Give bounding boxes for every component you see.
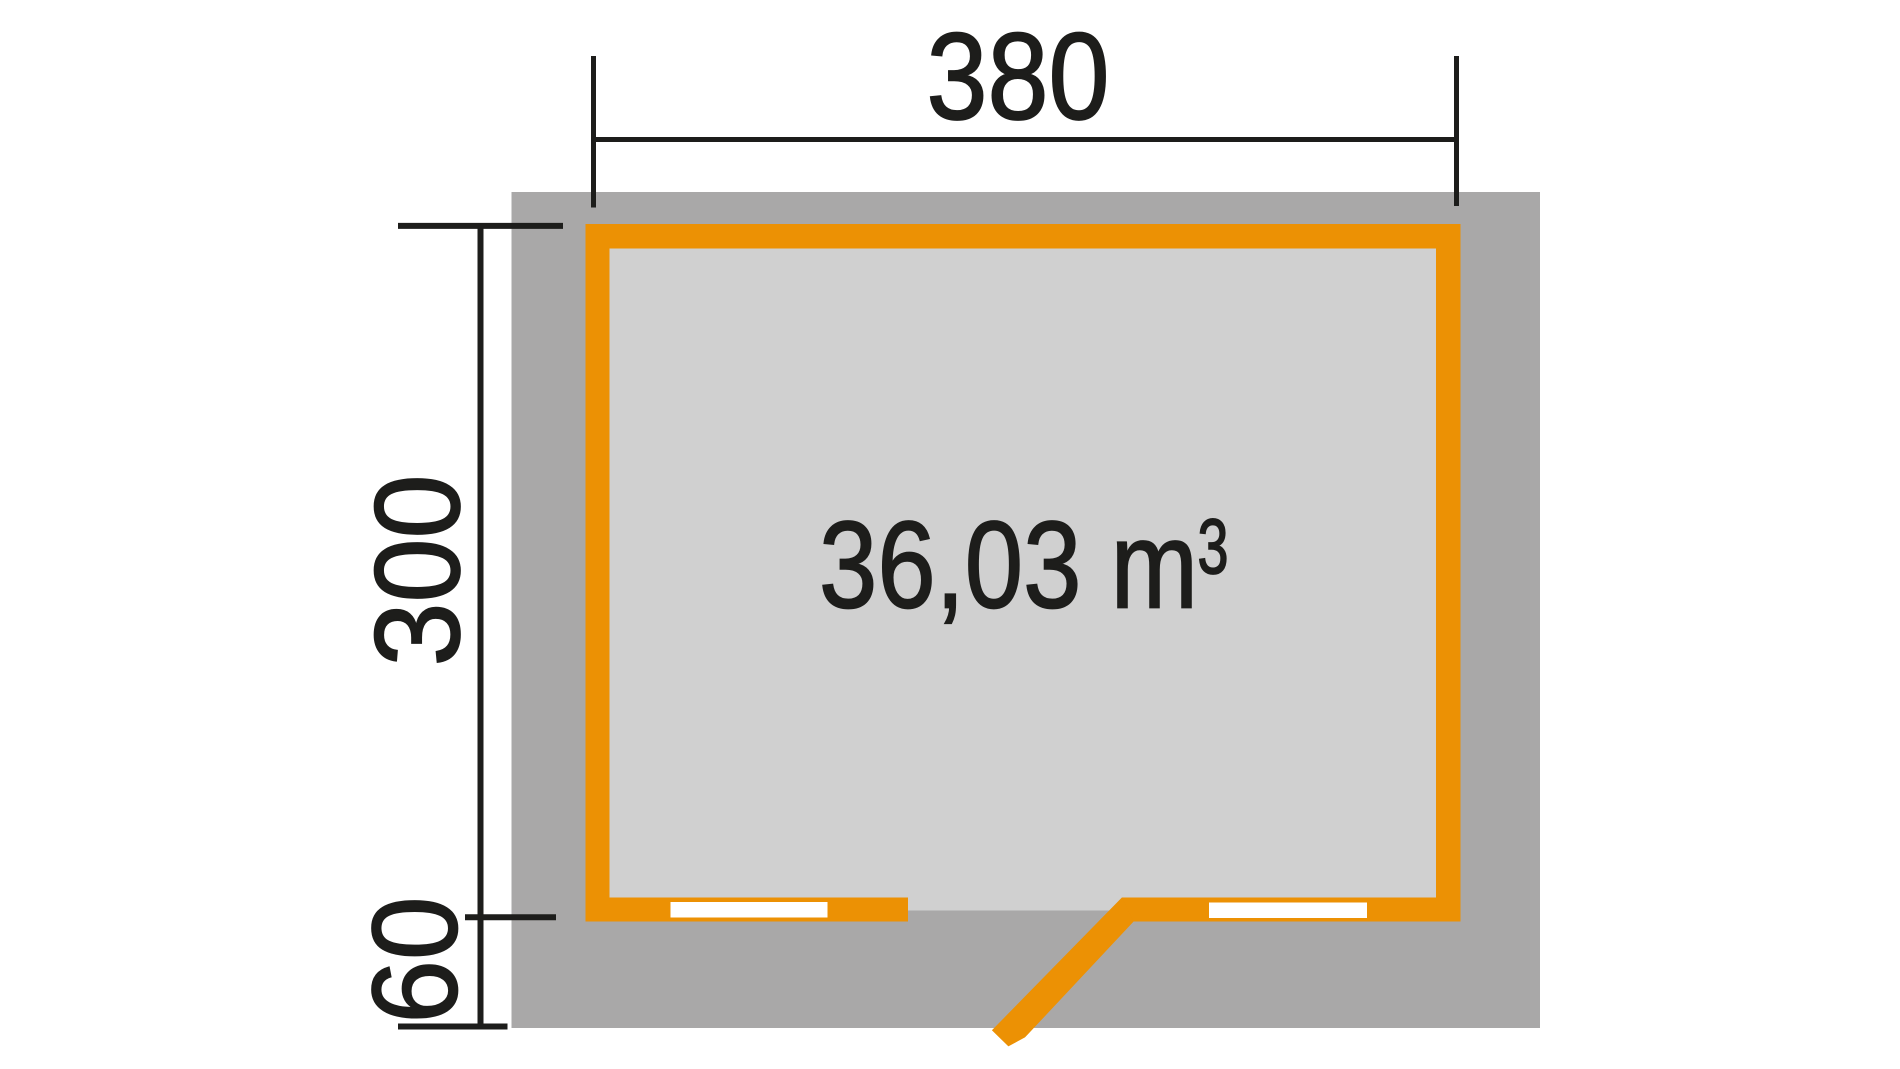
svg-text:380: 380	[927, 9, 1110, 146]
svg-text:3: 3	[1198, 502, 1229, 590]
svg-text:60: 60	[347, 897, 483, 1024]
svg-text:36,03 m: 36,03 m	[819, 498, 1198, 635]
svg-text:300: 300	[349, 475, 485, 667]
